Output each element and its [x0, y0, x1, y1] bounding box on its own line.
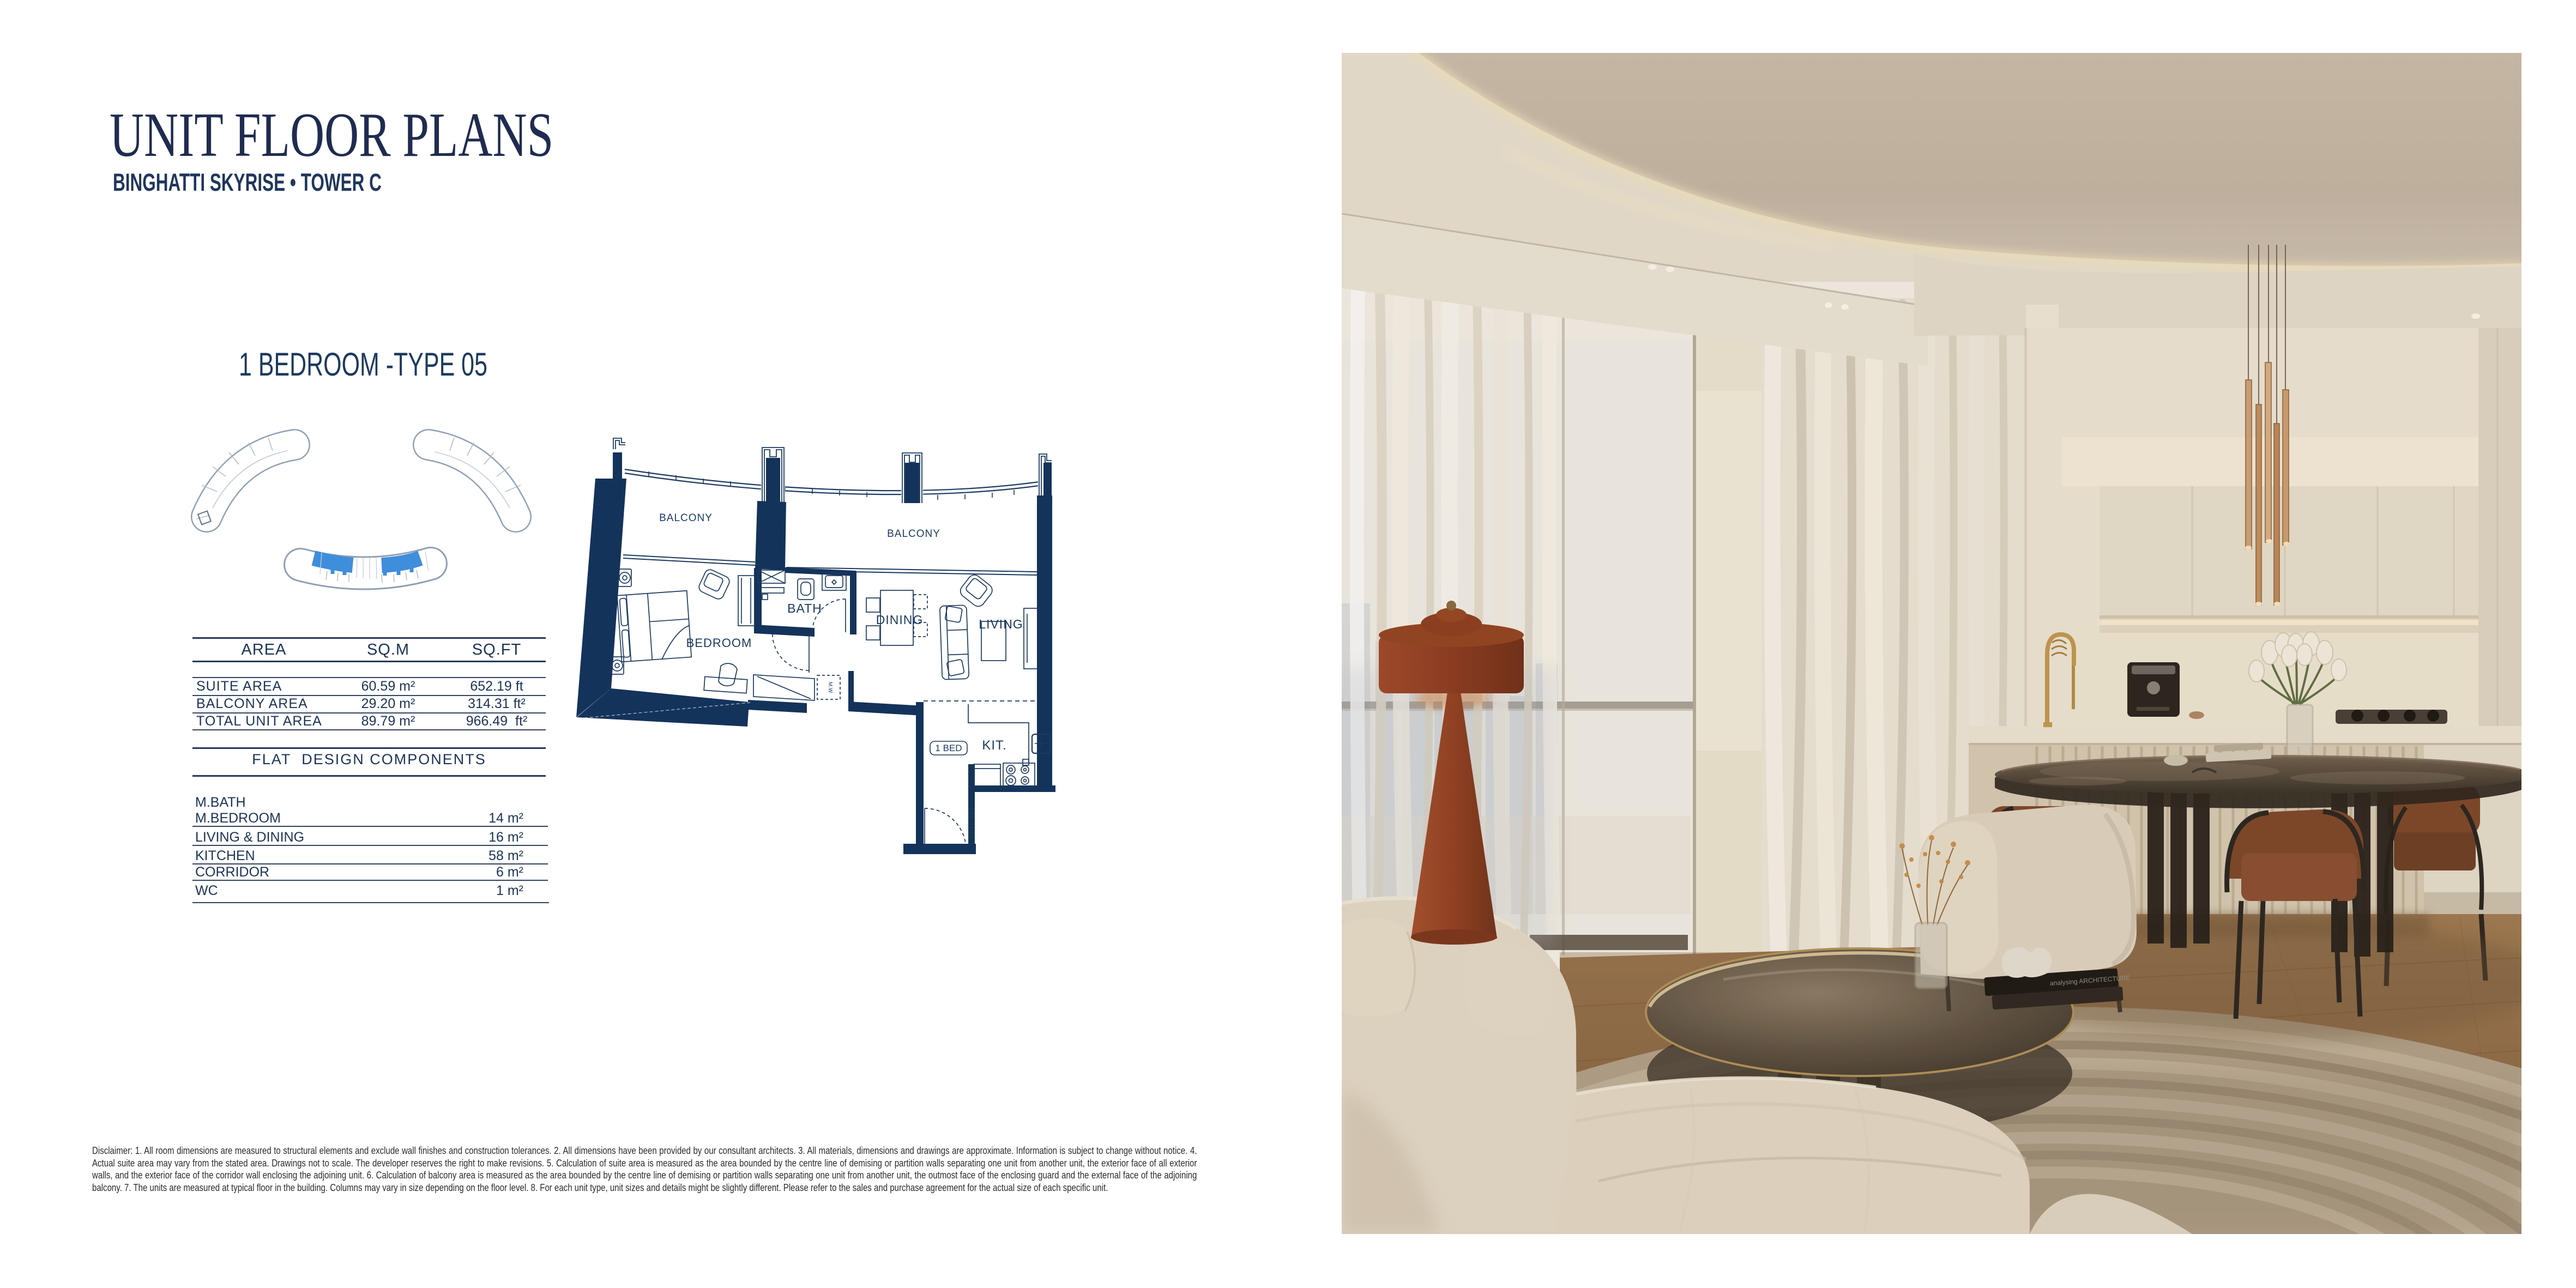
- svg-text:1 BED: 1 BED: [935, 743, 962, 753]
- svg-text:M.W: M.W: [827, 682, 833, 693]
- svg-text:BATH: BATH: [787, 601, 822, 615]
- svg-text:BEDROOM: BEDROOM: [686, 636, 752, 650]
- svg-text:BALCONY: BALCONY: [659, 512, 713, 524]
- svg-text:DINING: DINING: [876, 613, 924, 627]
- svg-text:LIVING: LIVING: [979, 617, 1023, 631]
- svg-text:BALCONY: BALCONY: [887, 528, 940, 540]
- svg-text:KIT.: KIT.: [982, 738, 1006, 753]
